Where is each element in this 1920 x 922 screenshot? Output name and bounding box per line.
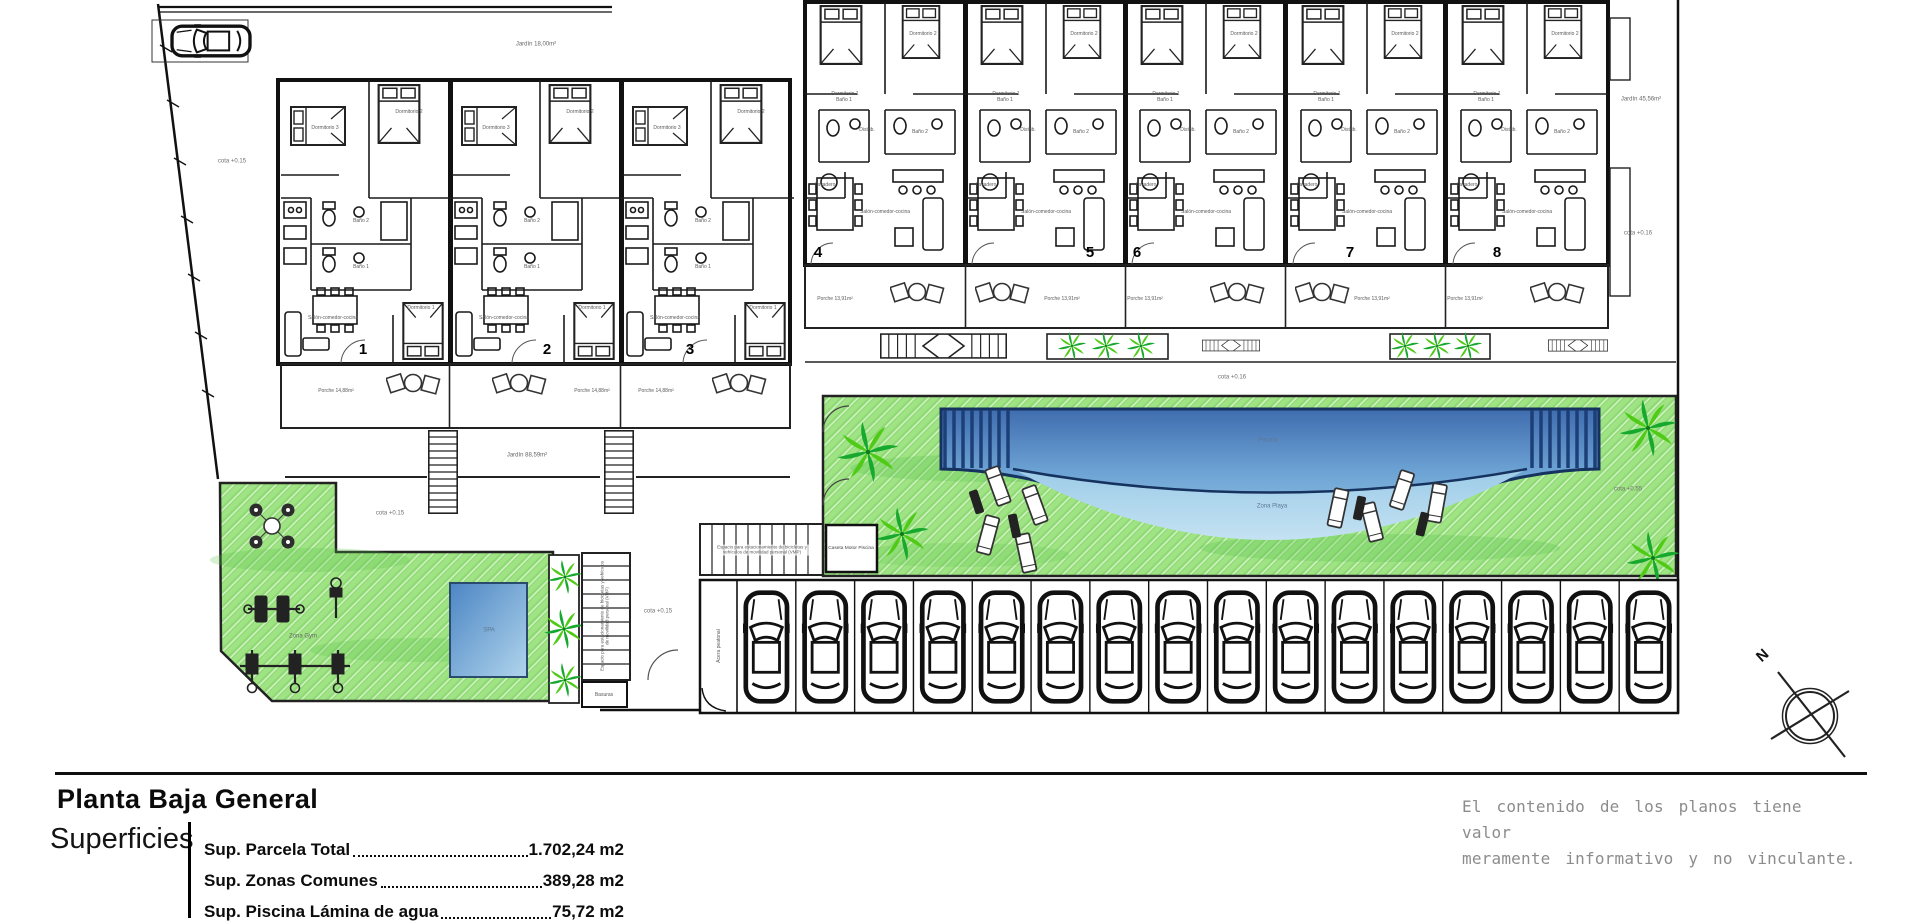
- room-label-salon: Salón-comedor-cocina: [860, 209, 910, 215]
- room-label-dormitorio2: Dormitorio 2: [1391, 31, 1418, 37]
- room-label-salon: Salón-comedor-cocina: [1502, 209, 1552, 215]
- disclaimer-line-1: El contenido de los planos tiene valor: [1462, 794, 1864, 846]
- room-label-distribuidor: Distrib.: [1020, 127, 1036, 133]
- title-separator-line: [55, 772, 1867, 775]
- disclaimer-line-2: meramente informativo y no vinculante.: [1462, 846, 1864, 872]
- unit-number-3: 3: [686, 341, 694, 359]
- unit-number-4: 4: [814, 244, 822, 262]
- room-label-dormitorio2: Dormitorio 2: [1230, 31, 1257, 37]
- porche-label: Porche 14,88m²: [638, 388, 674, 394]
- room-label-salon: Salón-comedor-cocina: [1342, 209, 1392, 215]
- surface-label: Sup. Zonas Comunes: [204, 871, 378, 891]
- zona-gym-label: Zona Gym: [289, 633, 317, 640]
- room-label-dormitorio1: Dormitorio 1: [831, 91, 858, 97]
- room-label-dormitorio3: Dormitorio 3: [311, 125, 338, 131]
- room-label-dormitorio3: Dormitorio 3: [653, 125, 680, 131]
- surface-value: 389,28 m2: [543, 871, 624, 891]
- room-label-lavadero: Lavadero: [976, 182, 997, 188]
- room-label-bano2: Baño 2: [353, 218, 369, 224]
- room-label-dormitorio3: Dormitorio 3: [482, 125, 509, 131]
- room-label-bano2: Baño 2: [1233, 129, 1249, 135]
- cota-label: cota +0.16: [1624, 230, 1652, 237]
- cota-label: cota +0.15: [218, 158, 246, 165]
- cota-label: cota +0.15: [376, 510, 404, 517]
- room-label-lavadero: Lavadero: [1297, 182, 1318, 188]
- room-label-dormitorio1: Dormitorio 1: [578, 305, 605, 311]
- bike-note-label: Espacio para estacionamiento de biciclet…: [600, 560, 611, 672]
- room-label-salon: Salón-comedor-cocina: [1181, 209, 1231, 215]
- bike-note-label: Espacio para estacionamiento de biciclet…: [715, 545, 809, 556]
- cota-label: cota +0.55: [1614, 486, 1642, 493]
- porche-label: Porche 13,91m²: [1044, 296, 1080, 302]
- surface-value: 75,72 m2: [552, 902, 624, 922]
- room-label-bano1: Baño 1: [836, 97, 852, 103]
- room-label-bano1: Baño 1: [353, 264, 369, 270]
- room-label-dormitorio1: Dormitorio 1: [1313, 91, 1340, 97]
- piscina-label: Piscina: [1258, 437, 1277, 444]
- acera-label: Acera peatonal: [716, 629, 722, 663]
- spa-label: SPA: [483, 627, 495, 634]
- room-label-salon: Salón-comedor-cocina: [479, 315, 529, 321]
- porche-label: Porche 13,91m²: [1447, 296, 1483, 302]
- room-label-dormitorio2: Dormitorio 2: [566, 109, 593, 115]
- dotted-leader: [353, 855, 527, 857]
- room-label-dormitorio2: Dormitorio 2: [395, 109, 422, 115]
- room-label-bano2: Baño 2: [1554, 129, 1570, 135]
- room-label-distribuidor: Distrib.: [859, 127, 875, 133]
- surfaces-table: Sup. Parcela Total 1.702,24 m2 Sup. Zona…: [204, 829, 624, 922]
- title-block-divider: [188, 822, 191, 918]
- dotted-leader: [441, 917, 551, 919]
- room-label-bano1: Baño 1: [524, 264, 540, 270]
- surfaces-section-label: Superficies: [50, 823, 193, 856]
- unit-number-1: 1: [359, 341, 367, 359]
- jardin-left-label: Jardín 88,59m²: [507, 452, 547, 459]
- cota-label: cota +0.16: [1218, 374, 1246, 381]
- floor-plan-sheet: Dormitorio 3Dormitorio 2Baño 2Baño 1Saló…: [0, 0, 1920, 920]
- unit-number-2: 2: [543, 341, 551, 359]
- room-label-dormitorio1: Dormitorio 1: [407, 305, 434, 311]
- room-label-bano2: Baño 2: [912, 129, 928, 135]
- plan-title: Planta Baja General: [57, 784, 318, 815]
- porche-label: Porche 14,88m²: [574, 388, 610, 394]
- cota-label: cota +0.15: [644, 608, 672, 615]
- porche-label: Porche 14,88m²: [318, 388, 354, 394]
- room-label-dormitorio1: Dormitorio 1: [1152, 91, 1179, 97]
- room-label-bano2: Baño 2: [695, 218, 711, 224]
- surface-value: 1.702,24 m2: [529, 840, 624, 860]
- room-label-bano2: Baño 2: [1073, 129, 1089, 135]
- jardin-top-label: Jardín 18,00m²: [516, 41, 556, 48]
- room-label-distribuidor: Distrib.: [1341, 127, 1357, 133]
- porche-label: Porche 13,91m²: [817, 296, 853, 302]
- room-label-dormitorio1: Dormitorio 1: [1473, 91, 1500, 97]
- dotted-leader: [381, 886, 542, 888]
- unit-number-8: 8: [1493, 244, 1501, 262]
- room-label-dormitorio2: Dormitorio 2: [1070, 31, 1097, 37]
- room-label-distribuidor: Distrib.: [1180, 127, 1196, 133]
- room-label-distribuidor: Distrib.: [1501, 127, 1517, 133]
- room-label-salon: Salón-comedor-cocina: [308, 315, 358, 321]
- room-label-bano1: Baño 1: [1318, 97, 1334, 103]
- room-label-bano1: Baño 1: [1478, 97, 1494, 103]
- room-label-dormitorio1: Dormitorio 1: [749, 305, 776, 311]
- caseta-label: Caseta Motor Piscina: [828, 546, 874, 552]
- room-label-lavadero: Lavadero: [1457, 182, 1478, 188]
- porche-label: Porche 13,91m²: [1354, 296, 1390, 302]
- zona-playa-label: Zona Playa: [1257, 503, 1287, 510]
- surface-row-piscina: Sup. Piscina Lámina de agua 75,72 m2: [204, 891, 624, 922]
- disclaimer-note: El contenido de los planos tiene valor m…: [1462, 794, 1864, 872]
- surface-row-zonas-comunes: Sup. Zonas Comunes 389,28 m2: [204, 860, 624, 891]
- basuras-label: Basuras: [595, 692, 613, 698]
- unit-number-5: 5: [1086, 244, 1094, 262]
- room-label-salon: Salón-comedor-cocina: [650, 315, 700, 321]
- room-label-bano1: Baño 1: [695, 264, 711, 270]
- unit-number-6: 6: [1133, 244, 1141, 262]
- room-label-dormitorio2: Dormitorio 2: [909, 31, 936, 37]
- room-label-salon: Salón-comedor-cocina: [1021, 209, 1071, 215]
- plan-labels-layer: Dormitorio 3Dormitorio 2Baño 2Baño 1Saló…: [0, 0, 1920, 775]
- room-label-dormitorio2: Dormitorio 2: [737, 109, 764, 115]
- room-label-lavadero: Lavadero: [1136, 182, 1157, 188]
- unit-number-7: 7: [1346, 244, 1354, 262]
- room-label-lavadero: Lavadero: [815, 182, 836, 188]
- north-label: N: [1753, 646, 1773, 667]
- room-label-bano2: Baño 2: [524, 218, 540, 224]
- jardin-right-label: Jardín 45,56m²: [1621, 96, 1661, 103]
- room-label-dormitorio2: Dormitorio 2: [1551, 31, 1578, 37]
- room-label-bano1: Baño 1: [997, 97, 1013, 103]
- room-label-bano1: Baño 1: [1157, 97, 1173, 103]
- surface-row-parcela: Sup. Parcela Total 1.702,24 m2: [204, 829, 624, 860]
- room-label-dormitorio1: Dormitorio 1: [992, 91, 1019, 97]
- room-label-bano2: Baño 2: [1394, 129, 1410, 135]
- surface-label: Sup. Piscina Lámina de agua: [204, 902, 438, 922]
- surface-label: Sup. Parcela Total: [204, 840, 350, 860]
- porche-label: Porche 13,91m²: [1127, 296, 1163, 302]
